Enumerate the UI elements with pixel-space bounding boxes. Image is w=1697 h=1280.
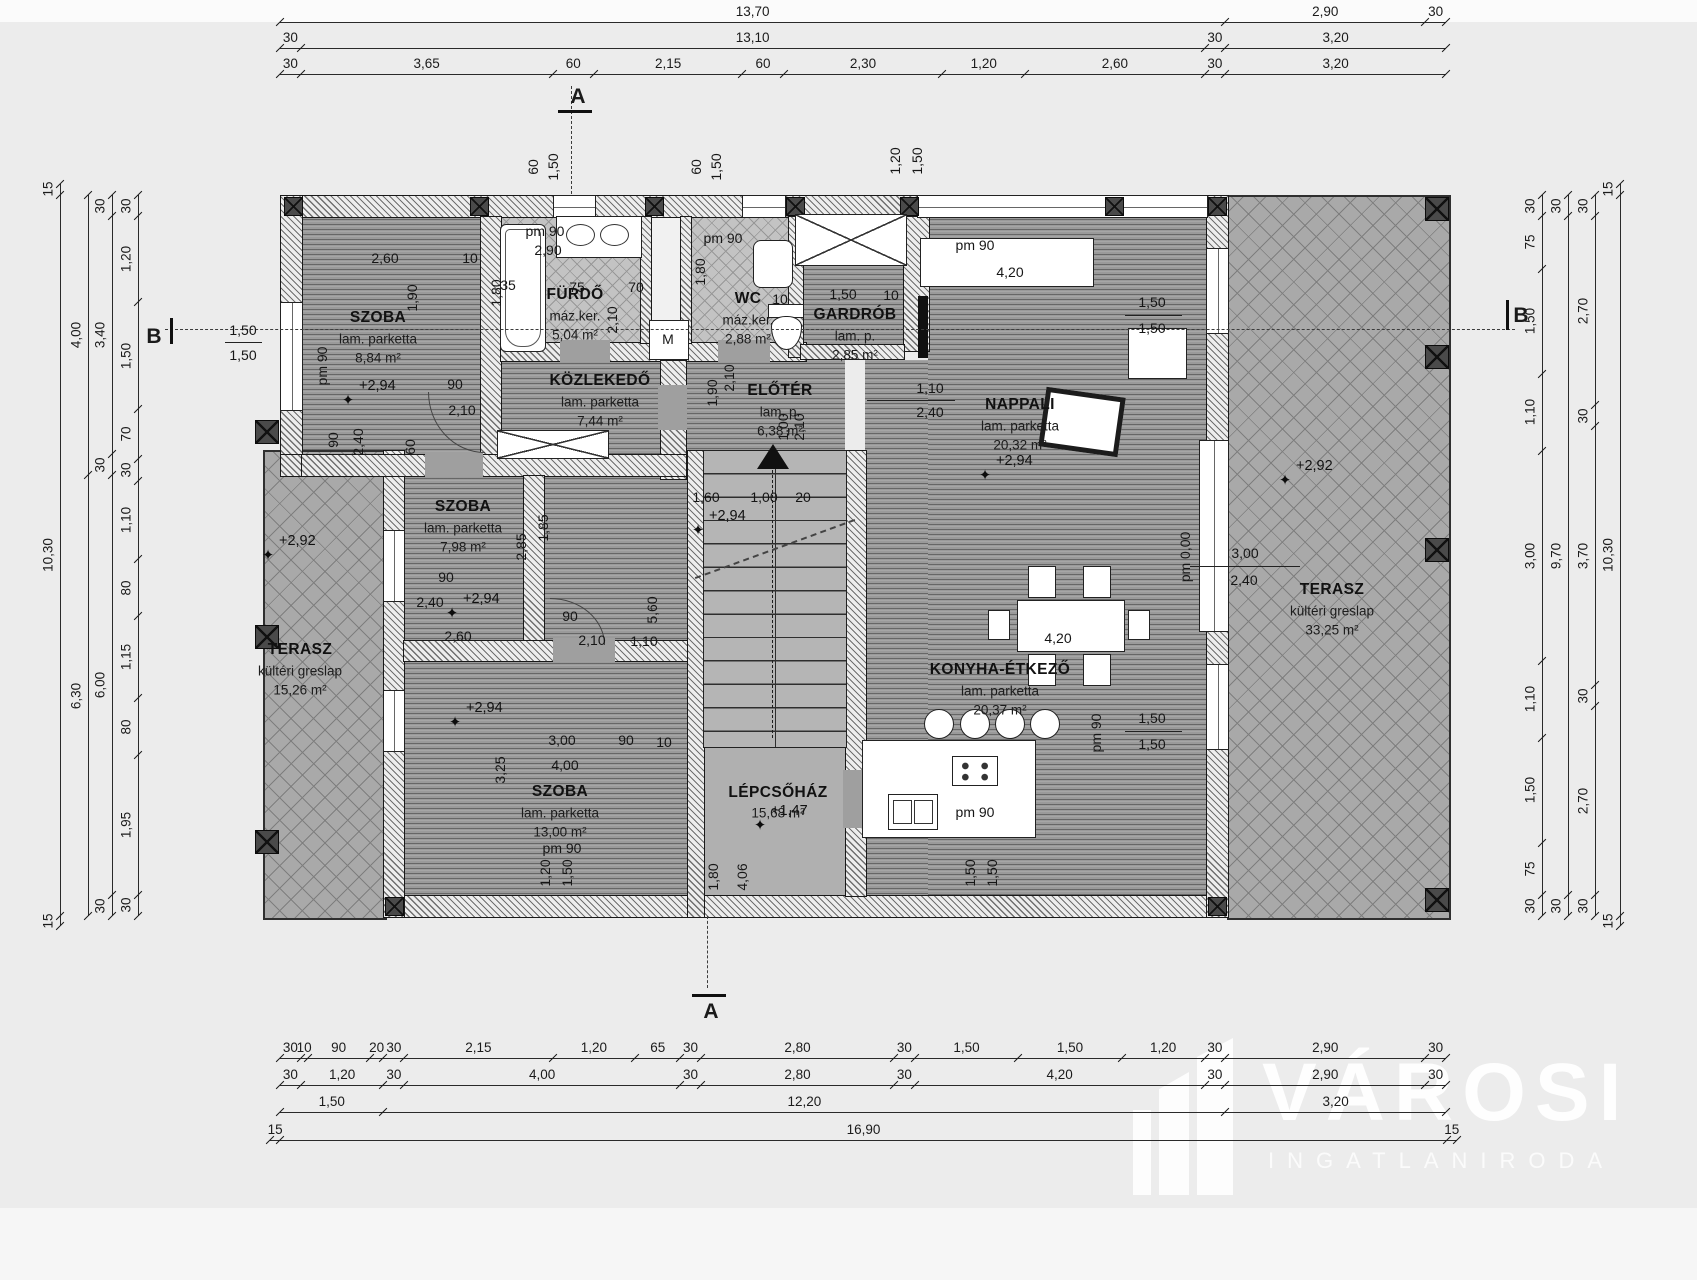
chain-tick — [631, 1054, 639, 1062]
terrace-door — [1199, 440, 1229, 632]
chain-value: 2,80 — [784, 1067, 810, 1082]
wc-washbasin — [753, 240, 793, 288]
chain-tick — [84, 471, 92, 479]
chain-tick — [1442, 70, 1450, 78]
chain-value: 1,50 — [119, 342, 134, 368]
pillar — [255, 420, 279, 444]
stair-direction-arrow — [757, 444, 789, 469]
floor-room2 — [403, 475, 523, 640]
chain-value: 9,70 — [1549, 542, 1564, 568]
chain-tick — [890, 1054, 898, 1062]
terrace-right — [1227, 195, 1451, 920]
washing-machine — [649, 320, 689, 360]
chair — [1083, 654, 1111, 686]
chain-value: 3,20 — [1322, 30, 1348, 45]
chain-value: 20 — [369, 1040, 384, 1055]
chain-value: 1,20 — [971, 56, 997, 71]
chain-value: 30 — [1549, 898, 1564, 913]
chain-tick — [1591, 702, 1599, 710]
chain-tick — [1591, 681, 1599, 689]
chain-tick — [108, 912, 116, 920]
chain-tick — [134, 405, 142, 413]
chain-tick — [134, 890, 142, 898]
chair — [1028, 566, 1056, 598]
chair — [988, 610, 1010, 640]
pillar — [385, 897, 404, 916]
chain-value: 30 — [897, 1067, 912, 1082]
armchair — [1128, 328, 1187, 379]
washbasin — [566, 224, 595, 246]
chain-tick — [1221, 70, 1229, 78]
chain-tick — [676, 1054, 684, 1062]
chain-value: 75 — [1523, 861, 1538, 876]
chain-tick — [1564, 212, 1572, 220]
chain-tick — [134, 191, 142, 199]
kitchen-sink — [888, 794, 938, 830]
chain-tick — [296, 1054, 304, 1062]
chain-value: 1,15 — [119, 644, 134, 670]
chain-value: 1,10 — [1523, 399, 1538, 425]
chain-tick — [400, 1081, 408, 1089]
window — [742, 195, 786, 218]
chain-tick — [1564, 891, 1572, 899]
pillar — [645, 197, 664, 216]
floor-entry — [685, 360, 845, 452]
stairs — [703, 450, 847, 748]
dining-table — [1017, 600, 1125, 652]
chain-value: 15 — [1601, 913, 1616, 928]
chain-tick — [1564, 191, 1572, 199]
bar-stool — [924, 709, 954, 739]
chain-tick — [108, 471, 116, 479]
chain-value: 1,50 — [953, 1040, 979, 1055]
chain-value: 80 — [119, 580, 134, 595]
dimension-label: 1,50 — [229, 322, 256, 338]
chain-tick — [1200, 70, 1208, 78]
chain-value: 75 — [1523, 235, 1538, 250]
dimension-label: 60 — [688, 159, 704, 175]
section-line-a — [707, 916, 708, 988]
chain-value: 1,20 — [581, 1040, 607, 1055]
chain-value: 90 — [331, 1040, 346, 1055]
chain-tick — [1538, 191, 1546, 199]
bottom-strip — [0, 1208, 1697, 1280]
chain-tick — [1538, 656, 1546, 664]
floor-stair-landing — [703, 745, 845, 895]
window — [383, 690, 405, 752]
section-mark-bar — [1506, 300, 1509, 330]
chain-tick — [1538, 912, 1546, 920]
chain-tick — [910, 1054, 918, 1062]
chain-value: 30 — [283, 30, 298, 45]
chair — [1028, 654, 1056, 686]
pillar — [1425, 197, 1449, 221]
chain-tick — [910, 1081, 918, 1089]
chain-value: 10 — [297, 1040, 312, 1055]
chain-value: 3,65 — [413, 56, 439, 71]
chain-value: 30 — [386, 1040, 401, 1055]
chain-value: 30 — [683, 1040, 698, 1055]
chain-tick — [738, 70, 746, 78]
chain-tick — [1200, 44, 1208, 52]
dimension-label: 1,20 — [887, 147, 903, 174]
chain-value: 30 — [1549, 198, 1564, 213]
chain-tick — [697, 1054, 705, 1062]
chain-value: 60 — [755, 56, 770, 71]
floor-room3 — [403, 660, 687, 895]
dimension-chain — [280, 48, 1446, 49]
bar-stool — [1030, 709, 1060, 739]
chair — [1128, 610, 1150, 640]
door-opening — [718, 340, 770, 362]
sofa — [920, 238, 1094, 287]
chain-value: 1,50 — [1057, 1040, 1083, 1055]
chair — [1083, 566, 1111, 598]
terrace-left — [263, 450, 387, 920]
wall — [403, 640, 689, 662]
chain-tick — [1616, 180, 1624, 188]
chain-value: 1,10 — [119, 507, 134, 533]
chain-value: 2,15 — [465, 1040, 491, 1055]
dimension-chain — [60, 184, 61, 926]
chain-value: 16,90 — [847, 1122, 881, 1137]
pillar — [255, 830, 279, 854]
chain-tick — [1021, 70, 1029, 78]
chain-tick — [1538, 733, 1546, 741]
logo-building-icon — [1197, 1038, 1233, 1195]
pillar — [1208, 197, 1227, 216]
chain-tick — [276, 1081, 284, 1089]
pillar — [1425, 538, 1449, 562]
chain-tick — [1014, 1054, 1022, 1062]
chain-tick — [1538, 446, 1546, 454]
dimension-chain — [1568, 195, 1569, 916]
chain-value: 30 — [897, 1040, 912, 1055]
chain-tick — [134, 298, 142, 306]
chain-tick — [1538, 212, 1546, 220]
washbasin — [600, 224, 629, 246]
chain-value: 6,00 — [93, 672, 108, 698]
tv-cabinet — [1038, 387, 1126, 458]
chain-value: 30 — [283, 1040, 298, 1055]
dimension-chain — [280, 22, 1446, 23]
top-strip — [0, 0, 1697, 22]
pillar — [1105, 197, 1124, 216]
section-label-b-left: B — [146, 325, 161, 349]
chain-value: 30 — [119, 462, 134, 477]
window — [553, 195, 596, 218]
chain-tick — [108, 450, 116, 458]
chain-value: 30 — [1523, 898, 1538, 913]
chain-tick — [84, 191, 92, 199]
chain-tick — [1442, 44, 1450, 52]
chain-tick — [1538, 838, 1546, 846]
dimension-chain — [88, 195, 89, 916]
chain-tick — [548, 70, 556, 78]
chain-value: 10,30 — [41, 538, 56, 572]
chain-tick — [134, 476, 142, 484]
chain-tick — [379, 1081, 387, 1089]
section-label-b-right: B — [1513, 304, 1528, 328]
chain-value: 30 — [1523, 198, 1538, 213]
chain-value: 10,30 — [1601, 538, 1616, 572]
window — [280, 302, 303, 411]
chain-tick — [134, 694, 142, 702]
bar-stool — [960, 709, 990, 739]
wardrobe-box — [795, 214, 907, 266]
dimension-label: 1,50 — [708, 153, 724, 180]
dimension-chain — [112, 195, 113, 916]
chain-tick — [56, 922, 64, 930]
chain-value: 30 — [386, 1067, 401, 1082]
chain-tick — [676, 1081, 684, 1089]
chain-tick — [134, 455, 142, 463]
chain-tick — [779, 70, 787, 78]
chain-tick — [890, 1081, 898, 1089]
pillar — [470, 197, 489, 216]
pillar — [1425, 888, 1449, 912]
chain-value: 2,60 — [1102, 56, 1128, 71]
logo-subtitle: INGATLANIRODA — [1268, 1148, 1615, 1174]
dimension-label: 60 — [525, 159, 541, 175]
chain-value: 30 — [1207, 30, 1222, 45]
chain-tick — [56, 180, 64, 188]
dimension-chain — [280, 74, 1446, 75]
chain-value: 30 — [1207, 56, 1222, 71]
pillar — [284, 197, 303, 216]
chain-tick — [1616, 922, 1624, 930]
chain-tick — [276, 1136, 284, 1144]
chain-value: 30 — [93, 457, 108, 472]
logo-building-icon — [1133, 1110, 1151, 1195]
section-label-a-bottom: A — [703, 1000, 718, 1024]
chain-tick — [108, 212, 116, 220]
chain-value: 1,20 — [119, 246, 134, 272]
chain-value: 70 — [119, 427, 134, 442]
chain-tick — [1591, 891, 1599, 899]
chain-tick — [1564, 912, 1572, 920]
chain-value: 13,10 — [736, 30, 770, 45]
window — [917, 195, 1208, 218]
chain-value: 2,30 — [850, 56, 876, 71]
chain-tick — [1591, 212, 1599, 220]
door-opening — [560, 340, 610, 362]
chain-tick — [134, 555, 142, 563]
chain-value: 15 — [41, 182, 56, 197]
chain-value: 3,20 — [1322, 56, 1348, 71]
dimension-chain — [1620, 184, 1621, 926]
chain-tick — [276, 1054, 284, 1062]
chain-value: 30 — [119, 898, 134, 913]
dimension-chain — [138, 195, 139, 916]
chain-value: 65 — [650, 1040, 665, 1055]
window — [1206, 664, 1229, 750]
dimension-label: 1,50 — [545, 153, 561, 180]
chain-tick — [1538, 369, 1546, 377]
chain-tick — [1616, 911, 1624, 919]
floor-plan-page: { "logo": {"name": "VÁROSI", "subtitle":… — [0, 0, 1697, 1280]
chain-tick — [548, 1054, 556, 1062]
chain-tick — [134, 212, 142, 220]
chain-value: 4,20 — [1046, 1067, 1072, 1082]
section-mark-bar — [170, 318, 173, 344]
chain-value: 1,50 — [1523, 777, 1538, 803]
chain-value: 30 — [283, 56, 298, 71]
chain-tick — [365, 1054, 373, 1062]
wall — [383, 895, 1229, 918]
window — [1206, 248, 1229, 334]
chain-value: 2,80 — [784, 1040, 810, 1055]
chain-value: 30 — [1576, 898, 1591, 913]
chain-value: 12,20 — [787, 1094, 821, 1109]
chain-value: 6,30 — [69, 682, 84, 708]
dimension-chain — [270, 1140, 1457, 1141]
chain-value: 30 — [1576, 198, 1591, 213]
chain-tick — [108, 891, 116, 899]
chain-tick — [1538, 891, 1546, 899]
section-line-b — [165, 329, 1515, 330]
chain-value: 15 — [41, 913, 56, 928]
chain-value: 15 — [1601, 182, 1616, 197]
chain-value: 30 — [119, 198, 134, 213]
chain-tick — [56, 190, 64, 198]
door-opening — [425, 452, 483, 477]
chain-tick — [1616, 190, 1624, 198]
chain-tick — [379, 1054, 387, 1062]
chain-tick — [938, 70, 946, 78]
chain-value: 30 — [93, 898, 108, 913]
chain-tick — [56, 911, 64, 919]
chain-tick — [1538, 264, 1546, 272]
chain-value: 1,95 — [119, 812, 134, 838]
wall — [301, 454, 687, 477]
chain-tick — [1591, 191, 1599, 199]
pillar — [1425, 345, 1449, 369]
chain-value: 4,00 — [529, 1067, 555, 1082]
dimension-label: 1,50 — [229, 347, 256, 363]
chain-value: 30 — [1576, 408, 1591, 423]
door-leaf — [918, 296, 928, 358]
dimension-label: 1,50 — [909, 147, 925, 174]
wall — [800, 344, 905, 360]
section-label-a-top: A — [570, 85, 585, 109]
chain-tick — [108, 191, 116, 199]
chain-tick — [134, 912, 142, 920]
chain-tick — [134, 612, 142, 620]
dimension-chain — [1542, 195, 1543, 916]
chain-tick — [296, 44, 304, 52]
wall — [383, 450, 405, 918]
chain-value: 3,00 — [1523, 542, 1538, 568]
chain-value: 15 — [268, 1122, 283, 1137]
chain-tick — [1591, 912, 1599, 920]
stair-walkline — [772, 470, 773, 738]
chain-value: 80 — [119, 719, 134, 734]
chain-tick — [1117, 1054, 1125, 1062]
chain-value: 2,70 — [1576, 297, 1591, 323]
chain-value: 3,70 — [1576, 542, 1591, 568]
section-mark-bar — [558, 110, 592, 113]
dimension-chain — [1595, 195, 1596, 916]
chain-tick — [1591, 422, 1599, 430]
section-mark-bar — [692, 994, 726, 997]
chain-value: 4,00 — [69, 322, 84, 348]
logo-building-icon — [1159, 1072, 1189, 1195]
cooktop — [952, 756, 998, 786]
closet-box — [497, 430, 609, 459]
chain-value: 30 — [93, 198, 108, 213]
chain-value: 2,70 — [1576, 787, 1591, 813]
chain-tick — [84, 912, 92, 920]
chain-value: 1,10 — [1523, 686, 1538, 712]
chain-tick — [303, 1054, 311, 1062]
chain-tick — [379, 1108, 387, 1116]
chain-tick — [296, 70, 304, 78]
chain-value: 60 — [566, 56, 581, 71]
chain-value: 1,20 — [329, 1067, 355, 1082]
chain-tick — [276, 70, 284, 78]
chain-value: 30 — [1576, 688, 1591, 703]
wall — [523, 475, 545, 660]
chain-tick — [276, 44, 284, 52]
chain-tick — [1591, 401, 1599, 409]
chain-tick — [276, 1108, 284, 1116]
fraction-line — [225, 342, 262, 343]
pillar — [1208, 897, 1227, 916]
chain-tick — [697, 1081, 705, 1089]
chain-value: 30 — [683, 1067, 698, 1082]
chain-tick — [296, 1081, 304, 1089]
bar-stool — [995, 709, 1025, 739]
chain-value: 2,15 — [655, 56, 681, 71]
chain-tick — [590, 70, 598, 78]
chain-tick — [1221, 44, 1229, 52]
chain-value: 3,40 — [93, 322, 108, 348]
chain-tick — [400, 1054, 408, 1062]
chain-value: 1,20 — [1150, 1040, 1176, 1055]
bathtub — [500, 224, 546, 352]
chain-tick — [134, 751, 142, 759]
logo-title: VÁROSI — [1262, 1046, 1630, 1140]
chain-tick — [266, 1136, 274, 1144]
door-opening — [658, 385, 687, 430]
window — [383, 530, 405, 602]
pillar — [255, 625, 279, 649]
chain-value: 30 — [283, 1067, 298, 1082]
chain-value: 1,50 — [319, 1094, 345, 1109]
